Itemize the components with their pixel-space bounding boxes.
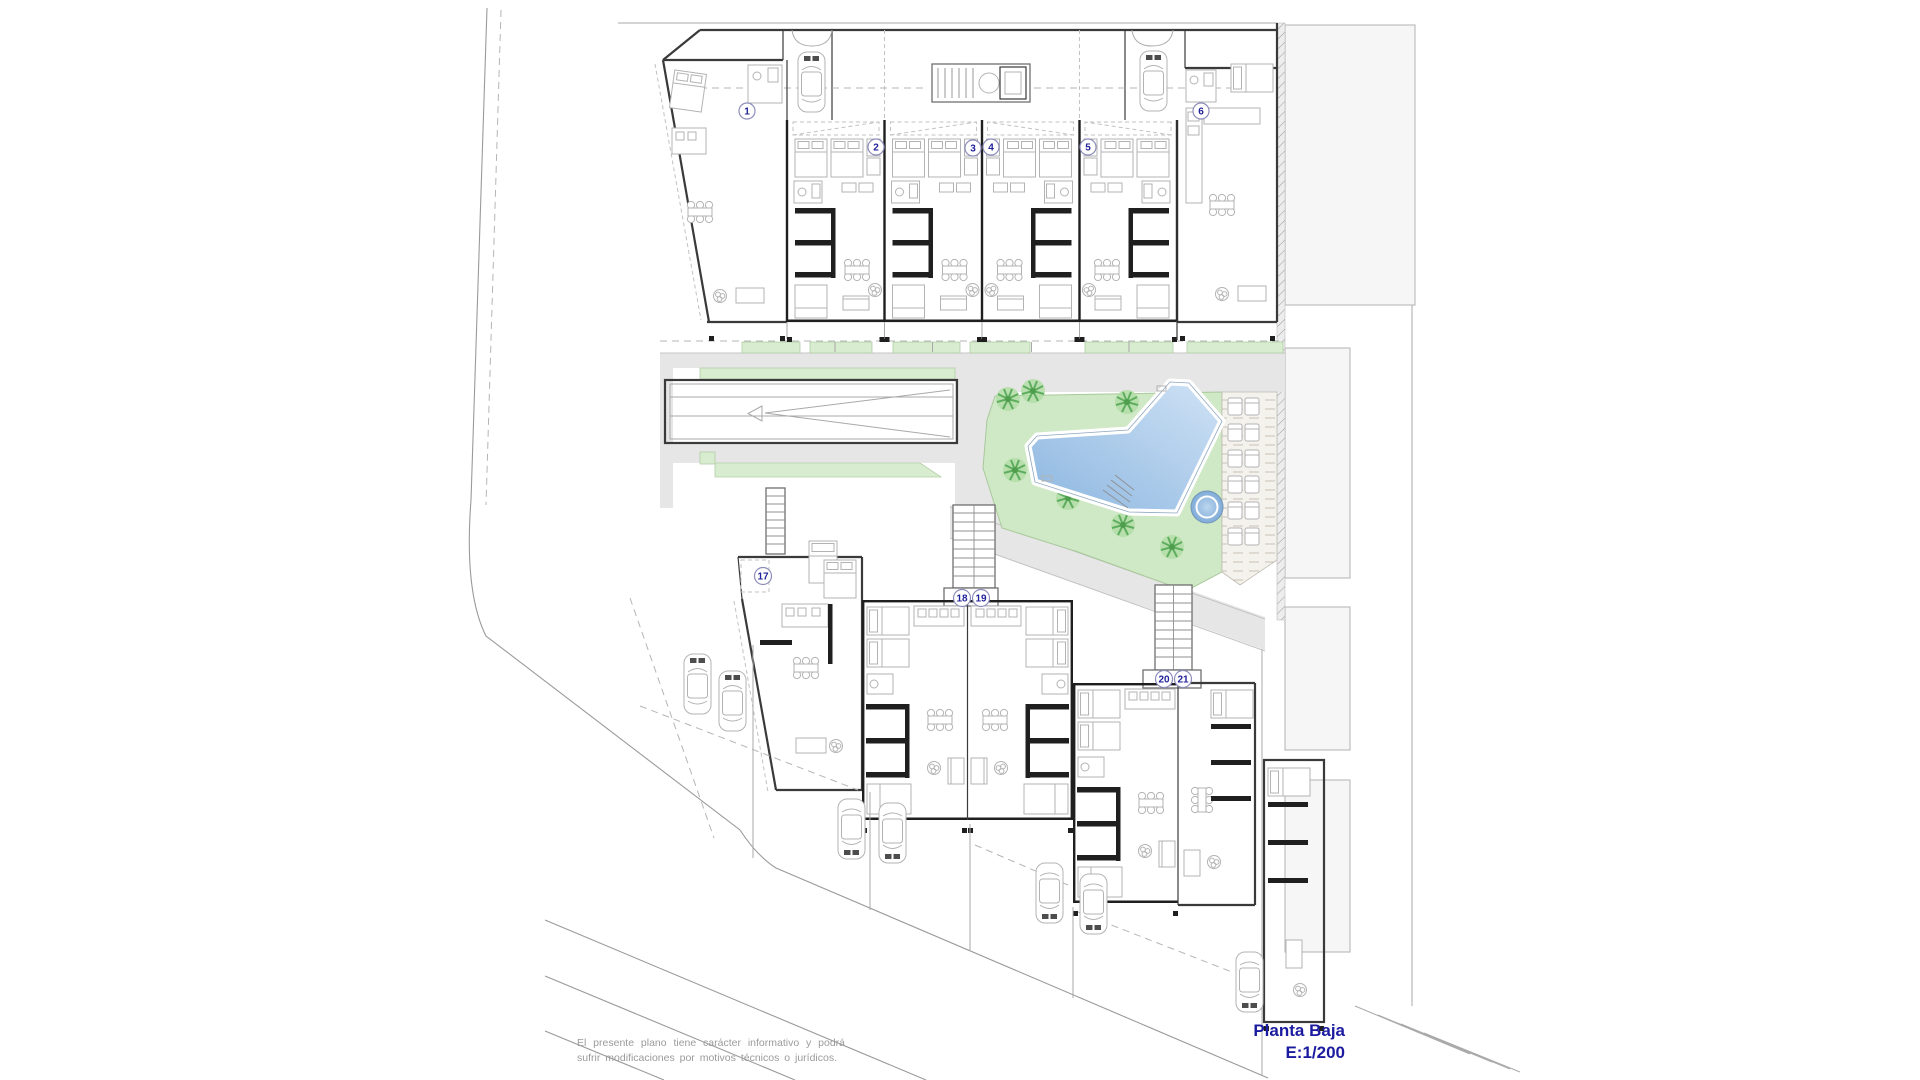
- floor-name: Planta Baja: [1145, 1020, 1345, 1042]
- unit-21: [1178, 683, 1255, 905]
- unit-number-badge: 18: [954, 590, 971, 607]
- unit-number-badge: 5: [1080, 139, 1096, 155]
- unit-number-badge: 1: [739, 103, 755, 119]
- neighbour-buildings: [1262, 23, 1415, 1075]
- floor-plan-canvas: 1 2 3 4 5 6 17 18 19 20 21 El presente p…: [0, 0, 1920, 1080]
- stairs-block-a: [766, 488, 785, 554]
- unit-number-badge: 2: [868, 139, 884, 155]
- svg-text:4: 4: [988, 143, 994, 154]
- disclaimer-text: El presente plano tiene carácter informa…: [577, 1036, 845, 1065]
- unit-number-badge: 21: [1175, 671, 1192, 688]
- svg-text:5: 5: [1085, 143, 1091, 154]
- unit-1: [655, 60, 787, 341]
- svg-text:2: 2: [873, 143, 879, 154]
- ramp-arrow-icon: [748, 406, 762, 421]
- svg-text:1: 1: [744, 107, 750, 118]
- disclaimer-line-2: modificaciones por motivos técnicos o ju…: [605, 1052, 837, 1064]
- svg-text:18: 18: [956, 594, 968, 605]
- unit-number-badge: 20: [1156, 671, 1173, 688]
- units-18-19-block: [862, 600, 1073, 833]
- unit-number-badge: 3: [965, 140, 981, 156]
- garage-door-icon: [792, 30, 832, 46]
- plan-title: Planta Baja E:1/200: [1145, 1020, 1345, 1064]
- unit-6: [1177, 64, 1277, 341]
- svg-text:21: 21: [1177, 675, 1189, 686]
- garage-door-icon: [1132, 30, 1173, 46]
- unit-number-badge: 4: [983, 139, 999, 155]
- boundary-wall-hatch: [1277, 23, 1285, 620]
- svg-text:20: 20: [1158, 675, 1170, 686]
- unit-number-badge: 6: [1193, 103, 1209, 119]
- scale-label: E:1/200: [1145, 1042, 1345, 1064]
- svg-text:6: 6: [1198, 107, 1204, 118]
- svg-text:3: 3: [970, 144, 976, 155]
- floor-plan-drawing: 1 2 3 4 5 6 17 18 19 20 21: [0, 0, 1920, 1080]
- svg-text:17: 17: [757, 572, 769, 583]
- road-hatch: [1355, 1006, 1520, 1072]
- unit-number-badge: 19: [973, 590, 990, 607]
- svg-text:19: 19: [975, 594, 987, 605]
- top-building: [655, 23, 1277, 352]
- stair-core: [932, 64, 1030, 102]
- unit-number-badge: 17: [755, 568, 772, 585]
- garage-ramp: [665, 380, 957, 443]
